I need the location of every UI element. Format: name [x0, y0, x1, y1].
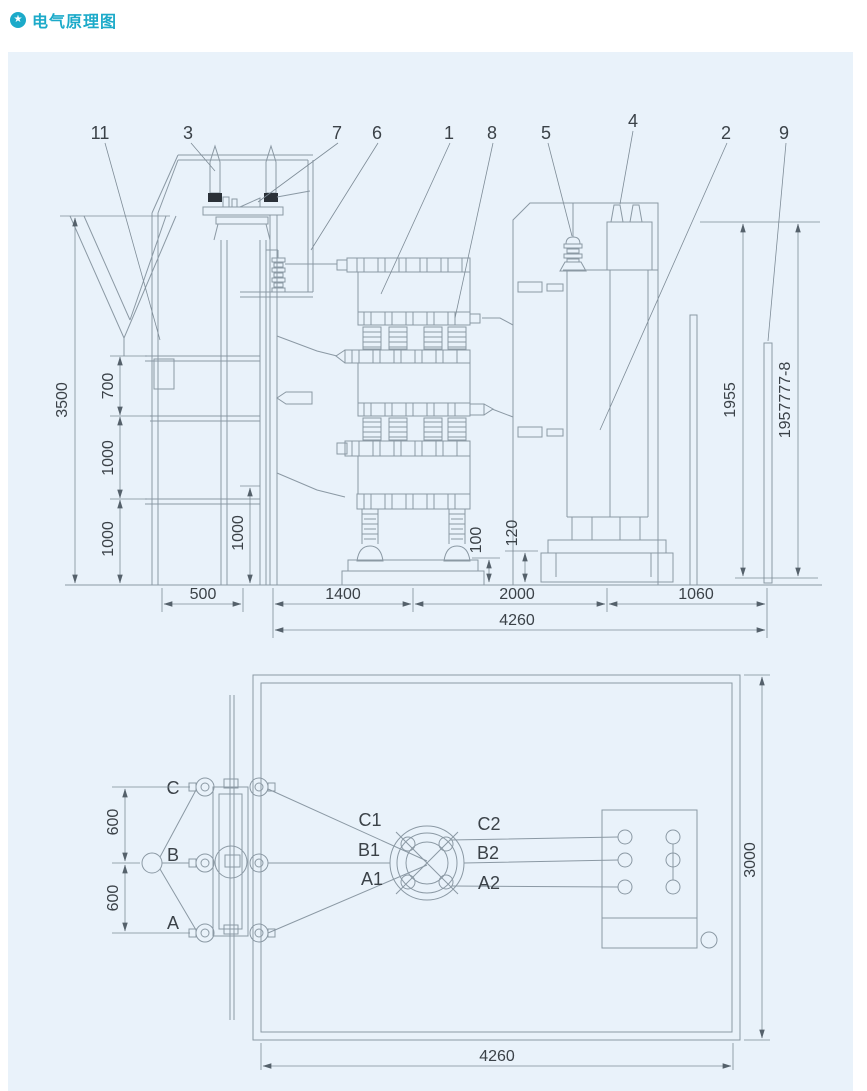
- reactor-base-upper: [348, 560, 478, 571]
- reactor-tier-3: [358, 456, 470, 494]
- terminal-box: [602, 810, 717, 948]
- label-phase-c1: C1: [358, 810, 381, 830]
- dim-span-500: 500: [190, 586, 217, 603]
- dim-span-1060: 1060: [678, 586, 714, 603]
- callout-7: 7: [332, 123, 342, 143]
- elevation-view: 11 3 7 6 1 8 5 4 2 9 3500 700 1000 1000 …: [54, 111, 822, 638]
- dim-right-1955: 1955: [722, 382, 739, 418]
- dim-pit-depth: 1000: [230, 515, 247, 551]
- dim-span-1400: 1400: [325, 586, 361, 603]
- tank-body: [541, 270, 673, 582]
- dim-base-100: 100: [468, 527, 485, 554]
- label-phase-a1: A1: [361, 869, 383, 889]
- dim-level-top: 700: [100, 373, 117, 400]
- phase-lines-left: [268, 789, 427, 933]
- callout-5: 5: [541, 123, 551, 143]
- callout-leaders: [105, 131, 786, 430]
- dim-level-mid: 1000: [100, 440, 117, 476]
- surge-arrester: [560, 203, 586, 271]
- dim-right-code: 1957777-8: [777, 362, 794, 439]
- fence-panel-2: [764, 343, 772, 583]
- callout-1: 1: [444, 123, 454, 143]
- tower-bushing-right: [264, 146, 278, 202]
- label-phase-b: B: [167, 845, 179, 865]
- cable-tag-flag: [277, 392, 312, 404]
- technical-drawing-canvas: 11 3 7 6 1 8 5 4 2 9 3500 700 1000 1000 …: [0, 0, 867, 1091]
- fence-panel-1: [690, 315, 697, 585]
- callout-6: 6: [372, 123, 382, 143]
- dim-base-120: 120: [504, 520, 521, 547]
- plan-view: C B A C1 B1 A1 C2 B2 A2 600 600 3000 426…: [105, 675, 770, 1070]
- phase-junction-node: [142, 853, 162, 873]
- anchor-hole: [701, 932, 717, 948]
- callout-3: 3: [183, 123, 193, 143]
- hatched-wall-block: [154, 359, 174, 389]
- label-phase-c: C: [167, 778, 180, 798]
- callout-11: 11: [91, 123, 110, 143]
- label-phase-a: A: [167, 913, 179, 933]
- dim-level-bottom: 1000: [100, 521, 117, 557]
- elevation-callouts: 11 3 7 6 1 8 5 4 2 9: [91, 111, 789, 143]
- center-flange: [390, 826, 464, 900]
- label-phase-c2: C2: [477, 814, 500, 834]
- reactor-tier-1: [358, 272, 470, 312]
- callout-9: 9: [779, 123, 789, 143]
- callout-4: 4: [628, 111, 638, 131]
- label-phase-b1: B1: [358, 840, 380, 860]
- coil-row-1: [363, 327, 466, 349]
- reactor-tier-2: [358, 363, 470, 403]
- tower-bushing-left: [208, 146, 222, 202]
- dim-3000: 3000: [742, 842, 759, 878]
- plan-dimensions: 600 600 3000 4260: [105, 675, 770, 1070]
- left-tower-structure: [70, 146, 337, 585]
- reactor-base-lower: [342, 571, 484, 585]
- support-insulators: [357, 509, 470, 561]
- label-phase-a2: A2: [478, 873, 500, 893]
- callout-8: 8: [487, 123, 497, 143]
- dim-plan-4260: 4260: [479, 1048, 515, 1065]
- coil-row-2: [363, 418, 466, 440]
- plan-bushing-frame: [142, 695, 275, 1020]
- dim-600-top: 600: [105, 809, 122, 836]
- callout-2: 2: [721, 123, 731, 143]
- dim-total-height: 3500: [54, 382, 71, 418]
- dim-span-2000: 2000: [499, 586, 535, 603]
- post-insulator: [266, 250, 285, 292]
- label-phase-b2: B2: [477, 843, 499, 863]
- dim-600-bottom: 600: [105, 885, 122, 912]
- dim-span-4260: 4260: [499, 612, 535, 629]
- capacitor-box: [607, 222, 652, 270]
- phase-lines-right: [450, 837, 618, 887]
